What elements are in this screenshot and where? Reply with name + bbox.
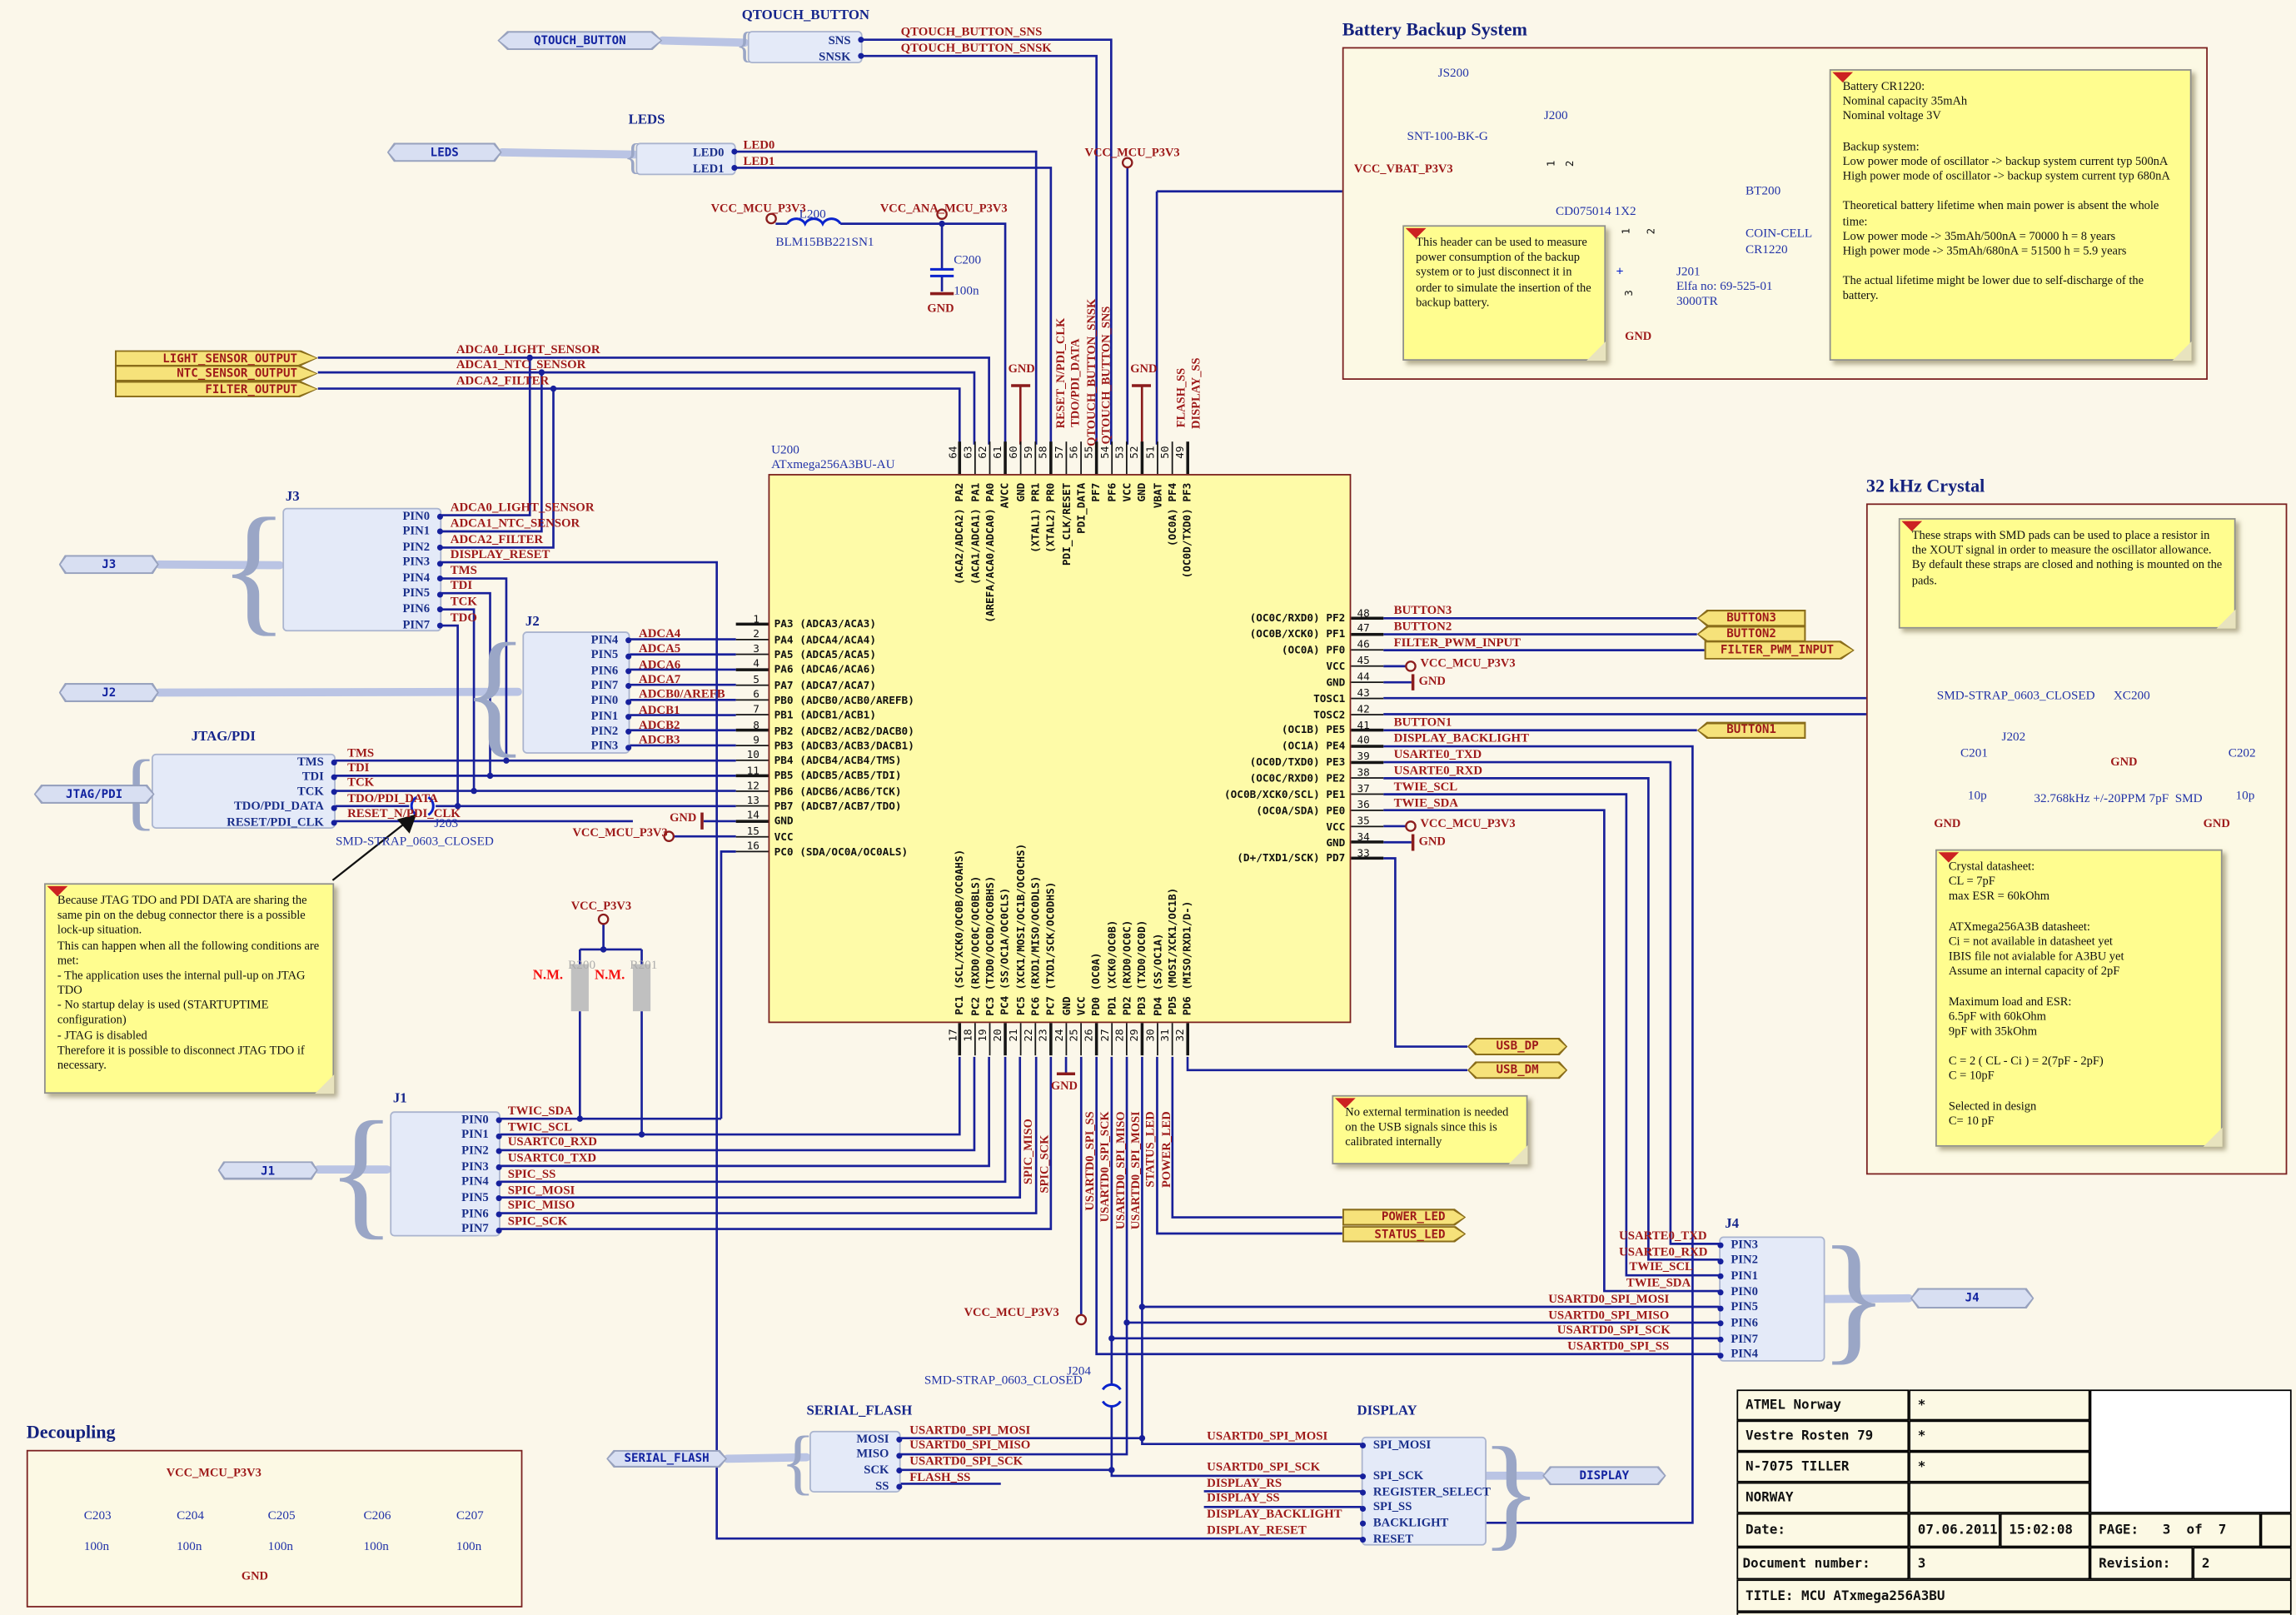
pin-number: 1 [730, 611, 760, 625]
pin-number: 47 [1357, 621, 1369, 635]
net-label: USARTD0_SPI_SS [1567, 1339, 1669, 1353]
net-label: ADCA2_FILTER [456, 373, 549, 386]
component-ref: C205 [268, 1508, 296, 1523]
net-label: VCC_MCU_P3V3 [1085, 146, 1180, 159]
mcu-pin: PD0 (OC0A) [1089, 952, 1103, 1015]
pin-number: 50 [1158, 446, 1172, 458]
harness-pin-PIN3[interactable]: PIN3 [391, 1159, 499, 1175]
net-label: USARTD0_SPI_SCK [1557, 1323, 1671, 1337]
mcu-pin: PB4 (ADCB4/ACB4/TMS) [774, 754, 902, 767]
note-2: Battery CR1220: Nominal capacity 35mAh N… [1830, 69, 2192, 361]
net-label: VCC_P3V3 [571, 900, 631, 913]
tb-star1: * [1909, 1389, 2089, 1420]
mcu-pin: PD6 (MISO/RXD1/D-) [1181, 901, 1194, 1016]
net-label: DISPLAY_SS [1189, 357, 1203, 429]
tb-time: 15:02:08 [2000, 1513, 2090, 1548]
pin-number: 7 [730, 703, 760, 716]
mcu-pin: PF6 [1105, 483, 1118, 502]
port-label: BUTTON1 [1697, 722, 1806, 739]
pin-number: 57 [1052, 446, 1065, 458]
port-J4[interactable]: J4 [1910, 1288, 2034, 1308]
pin-number: 44 [1357, 670, 1369, 683]
pin-number: 46 [1357, 638, 1369, 651]
pin-number: 48 [1357, 606, 1369, 619]
harness-pin-PIN7[interactable]: PIN7 [524, 679, 628, 694]
port-J1[interactable]: J1 [218, 1161, 318, 1180]
net-label: BUTTON1 [1394, 715, 1452, 729]
component-ref: JS200 [1438, 65, 1469, 80]
mcu-pin: PA7 (ADCA7/ACA7) [774, 678, 876, 691]
port-label: DISPLAY [1542, 1466, 1666, 1485]
net-label: USARTD0_SPI_SCK [1207, 1460, 1320, 1473]
component-ref: SMD-STRAP_0603_CLOSED [924, 1371, 1083, 1386]
net-label: GND [1130, 362, 1157, 376]
pin-number: 64 [945, 446, 959, 458]
harness-label-qtouch: QTOUCH_BUTTON [742, 8, 869, 23]
component-ref: 100n [954, 282, 979, 297]
component-ref: U200 [771, 441, 799, 456]
harness-serial_flash: MOSIMISOSCKSS [809, 1430, 901, 1493]
harness-pin-PIN6[interactable]: PIN6 [391, 1207, 499, 1223]
harness-label-display: DISPLAY [1357, 1404, 1417, 1419]
component-ref: 10p [1968, 788, 1987, 803]
net-label: ADCA5 [639, 642, 680, 655]
harness-pin-PIN2[interactable]: PIN2 [284, 540, 440, 556]
net-label: GND [927, 301, 954, 314]
pin-number: 39 [1357, 750, 1369, 763]
harness-label-jtag: JTAG/PDI [192, 730, 256, 745]
pin-number: 34 [1357, 830, 1369, 843]
pin-number: 2 [730, 627, 760, 641]
mcu-pin: PA4 (ADCA4/ACA4) [774, 632, 876, 646]
harness-pin-PIN4[interactable]: PIN4 [1721, 1348, 1824, 1363]
mcu-pin: GND [1014, 483, 1027, 502]
harness-pin-LED1[interactable]: LED1 [637, 160, 735, 176]
harness-pin-SPI_SS[interactable]: SPI_SS [1363, 1500, 1486, 1516]
net-label: TDI [347, 761, 369, 775]
mcu-pin: (OC0D/TXD0) PE3 [1250, 755, 1346, 769]
harness-pin-MOSI[interactable]: MOSI [811, 1432, 899, 1448]
pin-number: 37 [1357, 782, 1369, 795]
mcu-pin: (OC0C/RXD0) PF2 [1250, 611, 1346, 625]
cap-C200 [930, 269, 954, 276]
net-label: VCC_ANA_MCU_P3V3 [880, 201, 1008, 214]
pin-number: 21 [1007, 1029, 1020, 1041]
harness-pin-PIN2[interactable]: PIN2 [524, 725, 628, 740]
net-label: TCK [347, 776, 374, 790]
net-label: USARTD0_SPI_MOSI [1129, 1111, 1143, 1229]
pin-number: 33 [1357, 845, 1369, 859]
net-label: FLASH_SS [909, 1470, 970, 1483]
net-label: USARTD0_SPI_MISO [909, 1438, 1030, 1452]
net-label: USARTE0_TXD [1619, 1229, 1707, 1243]
net-label: QTOUCH_BUTTON_SNSK [1085, 299, 1098, 446]
port-POWER_LED[interactable]: POWER_LED [1342, 1209, 1466, 1225]
mcu-pin: (OC0C/RXD0) PE2 [1250, 771, 1346, 785]
mcu-pin: PC3 (TXD0/OC0D/OC0BHS) [984, 875, 997, 1015]
harness-pin-PIN7[interactable]: PIN7 [284, 618, 440, 634]
net-label: USARTD0_SPI_SS [1083, 1111, 1097, 1210]
tb-doc: 3 [1909, 1547, 2089, 1579]
pin-number: 26 [1083, 1029, 1096, 1041]
port-label: SERIAL_FLASH [606, 1450, 727, 1468]
decoupling-section [27, 1450, 523, 1608]
component-ref: J202 [2002, 729, 2026, 744]
net-label: GND [1934, 817, 1960, 830]
harness-j1: PIN0PIN1PIN2PIN3PIN4PIN5PIN6PIN7 [390, 1111, 501, 1237]
component-ref: BLM15BB221SN1 [775, 233, 874, 248]
net-label: TWIE_SCL [1394, 780, 1458, 793]
mcu-pin: PA3 (ADCA3/ACA3) [774, 617, 876, 631]
pin-number: 17 [945, 1029, 959, 1041]
harness-pin-PIN2[interactable]: PIN2 [391, 1144, 499, 1159]
net-label: USARTD0_SPI_MOSI [1548, 1292, 1669, 1305]
mcu-pin: (ACA2/ADCA2) PA2 [953, 483, 966, 585]
net-label: USARTD0_SPI_MOSI [1207, 1428, 1327, 1442]
pin-number: 5 [730, 672, 760, 685]
mcu-pin: (ACA1/ADCA1) PA1 [968, 483, 981, 585]
component-ref: L200 [799, 206, 826, 221]
mcu-pin: GND [1326, 675, 1345, 689]
net-label: FILTER_PWM_INPUT [1394, 636, 1521, 649]
mcu-pin: PC7 (TXD1/SCK/OC0DHS) [1044, 882, 1058, 1016]
port-J2[interactable]: J2 [59, 683, 159, 702]
harness-pin-TCK[interactable]: TCK [153, 785, 334, 800]
harness-pin-TMS[interactable]: TMS [153, 755, 334, 770]
mcu-pin: VBAT [1150, 483, 1163, 509]
harness-pin-PIN7[interactable]: PIN7 [391, 1223, 499, 1239]
net-label: ADCB1 [639, 703, 680, 716]
net-label: USARTD0_SPI_MISO [1114, 1111, 1128, 1229]
net-label: VCC_MCU_P3V3 [572, 825, 667, 839]
mcu-pin: TOSC1 [1313, 691, 1345, 705]
harness-pin-MISO[interactable]: MISO [811, 1448, 899, 1463]
port-BUTTON3[interactable]: BUTTON3 [1697, 610, 1806, 626]
component-ref: R201 [630, 957, 657, 972]
net-label: ADCA1_NTC_SENSOR [456, 357, 585, 371]
harness-pin-PIN1[interactable]: PIN1 [1721, 1269, 1824, 1284]
pin-number: 10 [730, 748, 760, 761]
harness-pin-PIN3[interactable]: PIN3 [524, 740, 628, 755]
pin-number: 4 [730, 657, 760, 670]
net-label: DISPLAY_SS [1207, 1492, 1279, 1505]
mcu-pin: PC1 (SCL/XCK0/OC0B/OC0AHS) [953, 850, 966, 1016]
net-label: ADCB0/AREFB [639, 688, 725, 701]
mcu-pin: GND [774, 815, 794, 828]
net-label: GND [2110, 755, 2137, 769]
net-label: GND [1009, 362, 1035, 376]
net-label: TDO/PDI_DATA [347, 791, 438, 805]
pin-number: 19 [976, 1029, 989, 1041]
harness-label-leds: LEDS [629, 113, 665, 128]
pin-number: 42 [1357, 702, 1369, 715]
port-SERIAL_FLASH[interactable]: SERIAL_FLASH [606, 1450, 727, 1468]
component-ref: 32.768kHz +/-20PPM 7pF SMD [2034, 790, 2202, 805]
harness-pin-BACKLIGHT[interactable]: BACKLIGHT [1363, 1516, 1486, 1532]
port-label: FILTER_OUTPUT [115, 381, 318, 397]
component-ref: J201 [1676, 263, 1701, 278]
harness-pin-RESET[interactable]: RESET [1363, 1532, 1486, 1548]
harness-pin-PIN2[interactable]: PIN2 [1721, 1253, 1824, 1269]
component-ref: SNT-100-BK-G [1407, 128, 1488, 143]
pin-number: 13 [730, 794, 760, 807]
pin-number: 35 [1357, 814, 1369, 827]
component-ref: BT200 [1746, 182, 1781, 197]
port-JTAG/PDI[interactable]: JTAG/PDI [34, 785, 155, 804]
port-DISPLAY[interactable]: DISPLAY [1542, 1466, 1666, 1485]
harness-qtouch: SNSSNSK [748, 30, 863, 62]
pin-number: 43 [1357, 685, 1369, 699]
component-ref: SMD-STRAP_0603_CLOSED [336, 833, 494, 848]
harness-pin-PIN0[interactable]: PIN0 [284, 509, 440, 525]
mcu-pin: PDI_CLK/RESET [1059, 483, 1073, 566]
net-label: USARTC0_TXD [508, 1151, 596, 1164]
net-label: 1 [1621, 228, 1632, 234]
net-label: + [1616, 263, 1623, 278]
port-label: USB_DM [1467, 1061, 1567, 1079]
port-USB_DP[interactable]: USB_DP [1467, 1038, 1567, 1055]
port-LEDS[interactable]: LEDS [387, 142, 502, 162]
harness-pin-PIN0[interactable]: PIN0 [391, 1112, 499, 1128]
harness-pin-SNSK[interactable]: SNSK [750, 47, 861, 63]
port-STATUS_LED[interactable]: STATUS_LED [1342, 1225, 1466, 1242]
net-label: DISPLAY_RESET [451, 547, 550, 561]
net-label: FLASH_SS [1174, 368, 1188, 428]
note-4: Crystal datasheet: CL = 7pF max ESR = 60… [1935, 850, 2223, 1147]
harness-pin-PIN0[interactable]: PIN0 [524, 694, 628, 709]
net-label: POWER_LED [1160, 1111, 1173, 1188]
decoupling-section-title: Decoupling [27, 1422, 116, 1444]
net-label: ADCA0_LIGHT_SENSOR [451, 501, 595, 514]
port-NTC_SENSOR_OUTPUT[interactable]: NTC_SENSOR_OUTPUT [115, 365, 318, 381]
net-label: 3 [1623, 290, 1635, 296]
component-ref: XC200 [2114, 686, 2150, 701]
harness-pin-SS[interactable]: SS [811, 1478, 899, 1494]
mcu-pin: GND [1059, 996, 1073, 1015]
harness-pin-PIN6[interactable]: PIN6 [284, 602, 440, 618]
tb-file: XMEGA-A3BU_XPLAINED_MCU.SchDoc [1736, 1612, 2291, 1615]
harness-pin-PIN7[interactable]: PIN7 [1721, 1332, 1824, 1348]
pin-number: 55 [1083, 446, 1096, 458]
net-label: VCC_MCU_P3V3 [1420, 817, 1515, 830]
net-label: TDI [451, 579, 472, 592]
component-ref: C203 [84, 1508, 112, 1523]
harness-pin-TDI[interactable]: TDI [153, 770, 334, 785]
net-label: STATUS_LED [1143, 1111, 1157, 1187]
port-label: LEDS [387, 142, 502, 162]
harness-pin-TDO/PDI_DATA[interactable]: TDO/PDI_DATA [153, 800, 334, 815]
harness-pin-PIN5[interactable]: PIN5 [524, 648, 628, 663]
net-label: TWIC_SCL [508, 1119, 572, 1133]
port-label: J2 [59, 683, 159, 702]
net-label: ADCA0_LIGHT_SENSOR [456, 342, 600, 356]
tb-doc-label: Document number: [1736, 1547, 1909, 1579]
net-label: ADCA1_NTC_SENSOR [451, 516, 580, 529]
port-QTOUCH_BUTTON[interactable]: QTOUCH_BUTTON [497, 31, 662, 50]
harness-pin-PIN3[interactable]: PIN3 [1721, 1238, 1824, 1254]
net-label: USARTE0_TXD [1394, 748, 1482, 761]
net-label: TWIE_SDA [1394, 795, 1458, 809]
pin-number: 24 [1052, 1029, 1065, 1041]
mcu-pin: PC2 (RXD0/OC0C/OC0BLS) [968, 875, 981, 1015]
harness-label-j4: J4 [1725, 1218, 1739, 1233]
net-label: BUTTON2 [1394, 620, 1452, 633]
pin-number: 30 [1143, 1029, 1157, 1041]
pin-number: 28 [1113, 1029, 1126, 1041]
port-FILTER_OUTPUT[interactable]: FILTER_OUTPUT [115, 381, 318, 397]
pin-number: 58 [1037, 446, 1050, 458]
net-label: ADCA4 [639, 627, 680, 641]
pin-number: 12 [730, 779, 760, 792]
net-label: VCC_MCU_P3V3 [167, 1466, 261, 1479]
pin-number: 54 [1098, 446, 1111, 458]
pin-number: 60 [1007, 446, 1020, 458]
mcu-pin: (OC1A) PE4 [1282, 740, 1345, 753]
net-label: DISPLAY_BACKLIGHT [1394, 731, 1529, 745]
net-label: LED0 [743, 137, 774, 151]
net-label: SPIC_SCK [508, 1214, 568, 1228]
port-label: J1 [218, 1161, 318, 1180]
harness-pin-PIN6[interactable]: PIN6 [524, 664, 628, 679]
tb-page: PAGE: 3 of 7 [2090, 1513, 2261, 1548]
net-label: SPIC_MISO [508, 1199, 575, 1212]
component-ref: COIN-CELL [1746, 225, 1812, 240]
harness-pin-RESET/PDI_CLK[interactable]: RESET/PDI_CLK [153, 815, 334, 830]
mcu-pin: PB3 (ADCB3/ACB3/DACB1) [774, 739, 914, 752]
net-label: DISPLAY_RESET [1207, 1523, 1307, 1537]
component-ref: 3000TR [1676, 293, 1718, 308]
mcu-pin: PF7 [1089, 483, 1103, 502]
net-label: ADCA7 [639, 672, 680, 685]
pin-number: 45 [1357, 654, 1369, 667]
net-label: TMS [451, 564, 477, 577]
mcu-pin: PC4 (SS/OC1A/OC0CLS) [999, 888, 1012, 1015]
net-label: DISPLAY_RS [1207, 1476, 1282, 1489]
mcu-pin: PC0 (SDA/OC0A/OC0ALS) [774, 845, 909, 858]
component-ref: Elfa no: 69-525-01 [1676, 278, 1773, 293]
component-ref: C206 [364, 1508, 391, 1523]
harness-label-j3: J3 [286, 491, 300, 506]
harness-label-j2: J2 [525, 616, 540, 631]
harness-pin-PIN4[interactable]: PIN4 [284, 571, 440, 586]
mcu-pin: PB2 (ADCB2/ACB2/DACB0) [774, 724, 914, 737]
harness-leds: LED0LED1 [635, 142, 735, 175]
harness-pin-PIN4[interactable]: PIN4 [391, 1175, 499, 1191]
net-label: N.M. [533, 969, 563, 984]
harness-pin-PIN5[interactable]: PIN5 [391, 1191, 499, 1207]
tb-title: TITLE: MCU ATxmega256A3BU [1736, 1579, 2291, 1612]
net-label: BUTTON3 [1394, 604, 1452, 617]
component-ref: 100n [268, 1538, 293, 1553]
harness-pin-PIN0[interactable]: PIN0 [1721, 1284, 1824, 1300]
note-0: Because JTAG TDO and PDI DATA are sharin… [44, 883, 334, 1094]
harness-j3: PIN0PIN1PIN2PIN3PIN4PIN5PIN6PIN7 [282, 507, 441, 632]
component-ref: CR1220 [1746, 241, 1788, 256]
harness-pin-PIN1[interactable]: PIN1 [524, 709, 628, 724]
harness-pin-PIN3[interactable]: PIN3 [284, 556, 440, 571]
mcu-pin: TOSC2 [1313, 707, 1345, 720]
harness-pin-SNS[interactable]: SNS [750, 32, 861, 47]
port-BUTTON1[interactable]: BUTTON1 [1697, 722, 1806, 739]
harness-pin-SCK[interactable]: SCK [811, 1463, 899, 1478]
harness-pin-SPI_MOSI[interactable]: SPI_MOSI [1363, 1438, 1486, 1453]
harness-pin-PIN1[interactable]: PIN1 [391, 1128, 499, 1144]
pin-number: 31 [1158, 1029, 1172, 1041]
port-label: STATUS_LED [1342, 1225, 1466, 1242]
pin-number: 61 [991, 446, 1004, 458]
mcu-pin: PD1 (XCK0/OC0B) [1105, 920, 1118, 1016]
pin-number: 36 [1357, 798, 1369, 811]
mcu-pin: PD3 (TXD0/OC0D) [1135, 920, 1148, 1016]
net-label: GND [670, 810, 696, 824]
pin-stub [1187, 441, 1188, 474]
net-label: TCK [451, 595, 477, 608]
mcu-pin: (AREFA/ACA0/ADCA0) PA0 [984, 483, 997, 623]
mcu-pin: VCC [774, 830, 794, 843]
net-label: USARTD0_SPI_SCK [1098, 1111, 1111, 1222]
net-label: TWIE_SDA [1626, 1276, 1691, 1289]
port-USB_DM[interactable]: USB_DM [1467, 1061, 1567, 1079]
harness-pin-REGISTER_SELECT[interactable]: REGISTER_SELECT [1363, 1484, 1486, 1500]
harness-pin-PIN5[interactable]: PIN5 [284, 586, 440, 602]
mcu-pin: PB6 (ADCB6/ACB6/TCK) [774, 784, 902, 797]
net-label: USARTD0_SPI_SCK [909, 1454, 1023, 1468]
net-label: DISPLAY_BACKLIGHT [1207, 1508, 1342, 1521]
net-label: SPIC_SCK [1038, 1135, 1051, 1194]
port-LIGHT_SENSOR_OUTPUT[interactable]: LIGHT_SENSOR_OUTPUT [115, 350, 318, 366]
tb-logo-cell: ATMEL [2090, 1389, 2292, 1513]
harness-pin-SPI_SCK[interactable]: SPI_SCK [1363, 1469, 1486, 1485]
component-ref: C201 [1960, 745, 1988, 760]
net-label: TDO/PDI_DATA [1068, 338, 1082, 426]
port-label: LIGHT_SENSOR_OUTPUT [115, 350, 318, 366]
component-ref: 100n [84, 1538, 109, 1553]
port-label: J4 [1910, 1288, 2034, 1308]
harness-pin-PIN6[interactable]: PIN6 [1721, 1316, 1824, 1332]
pin-number: 15 [730, 824, 760, 837]
schematic-sheet: Battery Backup System 32 kHz Crystal Dec… [0, 0, 2296, 1615]
component-ref: 10p [2236, 788, 2255, 803]
note-3: These straps with SMD pads can be used t… [1899, 518, 2236, 629]
pin-number: 59 [1022, 446, 1035, 458]
mcu-pin: (OC0D/TXD0) PF3 [1181, 483, 1194, 579]
net-label: RESET_N/PDI_CLK [1053, 318, 1067, 429]
port-FILTER_PWM_INPUT[interactable]: FILTER_PWM_INPUT [1705, 641, 1855, 660]
harness-pin-LED0[interactable]: LED0 [637, 143, 735, 159]
pin-number: 49 [1173, 446, 1187, 458]
port-J3[interactable]: J3 [59, 555, 159, 574]
pin-number: 22 [1022, 1029, 1035, 1041]
mcu-pin: PD5 (MOSI/XCK1/OC1B) [1166, 888, 1179, 1015]
net-label: USARTD0_SPI_MOSI [909, 1423, 1030, 1436]
pin-number: 8 [730, 718, 760, 731]
component-ref: CD075014 1X2 [1556, 203, 1636, 218]
net-label: 2 [1646, 228, 1657, 234]
mcu-pin: PB5 (ADCB5/ACB5/TDI) [774, 769, 902, 782]
harness-pin-PIN4[interactable]: PIN4 [524, 633, 628, 648]
component-ref: ATxmega256A3BU-AU [771, 456, 894, 471]
component-ref: J203 [434, 815, 458, 830]
harness-pin-PIN5[interactable]: PIN5 [1721, 1300, 1824, 1316]
mcu-pin: VCC [1074, 996, 1088, 1015]
pin-number: 63 [961, 446, 974, 458]
mcu-pin: PC5 (XCK1/MOSI/OC1B/OC0CHS) [1014, 844, 1027, 1015]
harness-j2: PIN4PIN5PIN6PIN7PIN0PIN1PIN2PIN3 [522, 631, 630, 753]
net-label: VCC_MCU_P3V3 [964, 1306, 1059, 1319]
harness-pin-PIN1[interactable]: PIN1 [284, 524, 440, 540]
mcu-pin: VCC [1326, 660, 1345, 673]
pin-number: 23 [1037, 1029, 1050, 1041]
